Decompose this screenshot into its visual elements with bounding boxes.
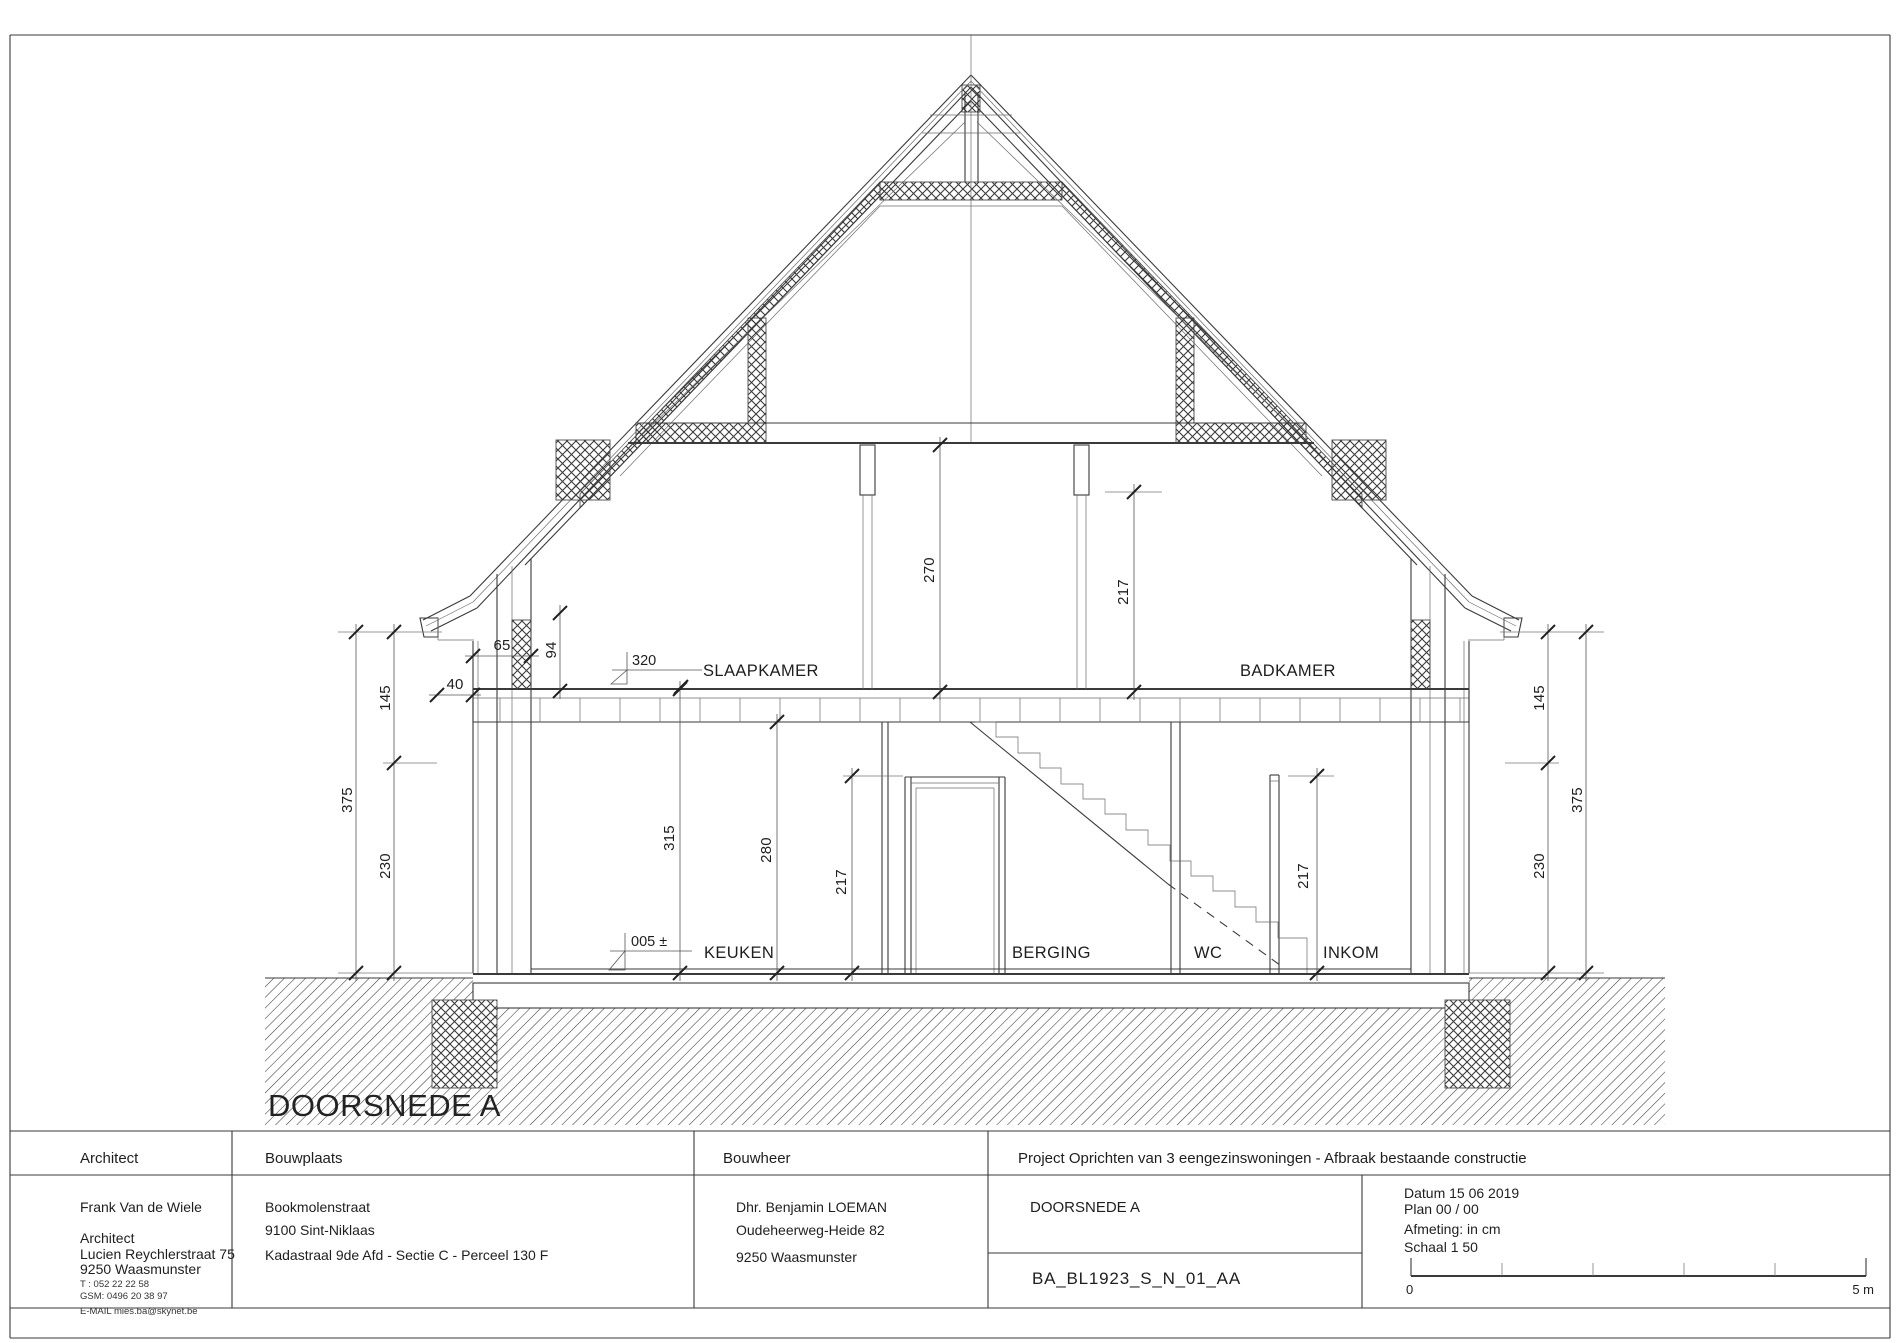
bouwheer-street: Oudeheerweg-Heide 82 [736, 1222, 885, 1238]
project-header: Project Oprichten van 3 eengezinswoninge… [1018, 1150, 1527, 1167]
page-border [10, 35, 1890, 1338]
architect-name: Frank Van de Wiele [80, 1199, 202, 1215]
bouwheer-city: 9250 Waasmunster [736, 1249, 857, 1265]
dim-40: 40 [446, 676, 463, 693]
drawing-title: DOORSNEDE A [268, 1088, 501, 1123]
foundation-right [1445, 1000, 1510, 1088]
dimensions: 375 145 230 375 145 230 65 40 94 270 217… [338, 437, 1604, 981]
eave-left [420, 596, 477, 640]
architect-gsm: GSM: 0496 20 38 97 [80, 1291, 168, 1302]
architect-role: Architect [80, 1230, 135, 1246]
level-markers: 320 005 ± [609, 652, 702, 970]
room-labels: SLAAPKAMER BADKAMER KEUKEN BERGING WC IN… [703, 662, 1379, 962]
architect-city: 9250 Waasmunster [80, 1261, 201, 1277]
attic-structure [556, 35, 1386, 500]
wall-plate-left [556, 440, 610, 500]
project-code: BA_BL1923_S_N_01_AA [1032, 1269, 1241, 1288]
bouwplaats-kadaster: Kadastraal 9de Afd - Sectie C - Perceel … [265, 1247, 548, 1263]
project-section: DOORSNEDE A [1030, 1199, 1140, 1216]
wall-insulation-right [1411, 620, 1430, 689]
dim-375-right: 375 [1569, 787, 1586, 813]
level-320-label: 320 [632, 653, 656, 669]
project-schaal: Schaal 1 50 [1404, 1239, 1478, 1255]
room-label-berging: BERGING [1012, 944, 1091, 962]
room-label-inkom: INKOM [1323, 944, 1379, 962]
dim-65: 65 [493, 637, 510, 654]
architect-header: Architect [80, 1150, 139, 1167]
door-berging [905, 777, 1005, 973]
level-005-label: 005 ± [631, 934, 667, 950]
knee-wall-right [1176, 318, 1194, 423]
dim-145-left: 145 [377, 685, 394, 711]
architect-tel: T : 052 22 22 58 [80, 1279, 149, 1290]
gutter-right [1504, 618, 1522, 637]
staircase [970, 722, 1307, 973]
dim-315: 315 [661, 825, 678, 851]
architect-email: E-MAIL mies.ba@skynet.be [80, 1306, 198, 1317]
project-plan: Plan 00 / 00 [1404, 1201, 1479, 1217]
bouwheer-name: Dhr. Benjamin LOEMAN [736, 1199, 887, 1215]
section-drawing-svg: DOORSNEDE A [0, 0, 1900, 1343]
walls-floors [473, 445, 1469, 974]
room-label-badkamer: BADKAMER [1240, 662, 1336, 680]
gutter-left [420, 618, 438, 637]
room-label-wc: WC [1194, 944, 1222, 962]
project-datum: Datum 15 06 2019 [1404, 1185, 1519, 1201]
knee-wall-left [748, 318, 766, 423]
dim-230-left: 230 [377, 853, 394, 879]
eave-right [1465, 596, 1522, 640]
plan-sheet: DOORSNEDE A [0, 0, 1900, 1343]
dim-230-right: 230 [1531, 853, 1548, 879]
dim-94: 94 [543, 641, 560, 658]
scale-bar: 0 5 m [1406, 1258, 1874, 1297]
architect-cell: Frank Van de Wiele Architect Lucien Reyc… [80, 1199, 235, 1317]
bouwplaats-street: Bookmolenstraat [265, 1199, 370, 1215]
scale-bar-five: 5 m [1852, 1282, 1874, 1297]
dim-270: 270 [921, 557, 938, 583]
bouwplaats-city: 9100 Sint-Niklaas [265, 1222, 375, 1238]
first-floor-partitions [860, 445, 1089, 689]
bouwplaats-header: Bouwplaats [265, 1150, 343, 1167]
project-cell: DOORSNEDE A BA_BL1923_S_N_01_AA Datum 15… [1030, 1185, 1519, 1288]
title-block: Architect Bouwplaats Bouwheer Project Op… [10, 1131, 1890, 1317]
ground-floor-partitions [882, 722, 1279, 973]
dim-217-attic: 217 [1115, 579, 1132, 605]
architect-street: Lucien Reychlerstraat 75 [80, 1246, 235, 1262]
project-afmeting: Afmeting: in cm [1404, 1221, 1500, 1237]
dim-145-right: 145 [1531, 685, 1548, 711]
bouwplaats-cell: Bookmolenstraat 9100 Sint-Niklaas Kadast… [265, 1199, 548, 1263]
room-label-slaapkamer: SLAAPKAMER [703, 662, 819, 680]
dim-217-door: 217 [833, 869, 850, 895]
level-320: 320 [611, 652, 702, 694]
wall-plate-right [1332, 440, 1386, 500]
room-label-keuken: KEUKEN [704, 944, 774, 962]
dim-217-inkom: 217 [1295, 863, 1312, 889]
wall-insulation-left [512, 620, 531, 689]
bouwheer-cell: Dhr. Benjamin LOEMAN Oudeheerweg-Heide 8… [736, 1199, 887, 1265]
scale-bar-zero: 0 [1406, 1282, 1413, 1297]
bouwheer-header: Bouwheer [723, 1150, 791, 1167]
level-005: 005 ± [609, 933, 692, 970]
dim-375-left: 375 [339, 787, 356, 813]
first-floor-slab [473, 689, 1469, 722]
dim-280: 280 [758, 837, 775, 863]
foundation-left [432, 1000, 497, 1088]
